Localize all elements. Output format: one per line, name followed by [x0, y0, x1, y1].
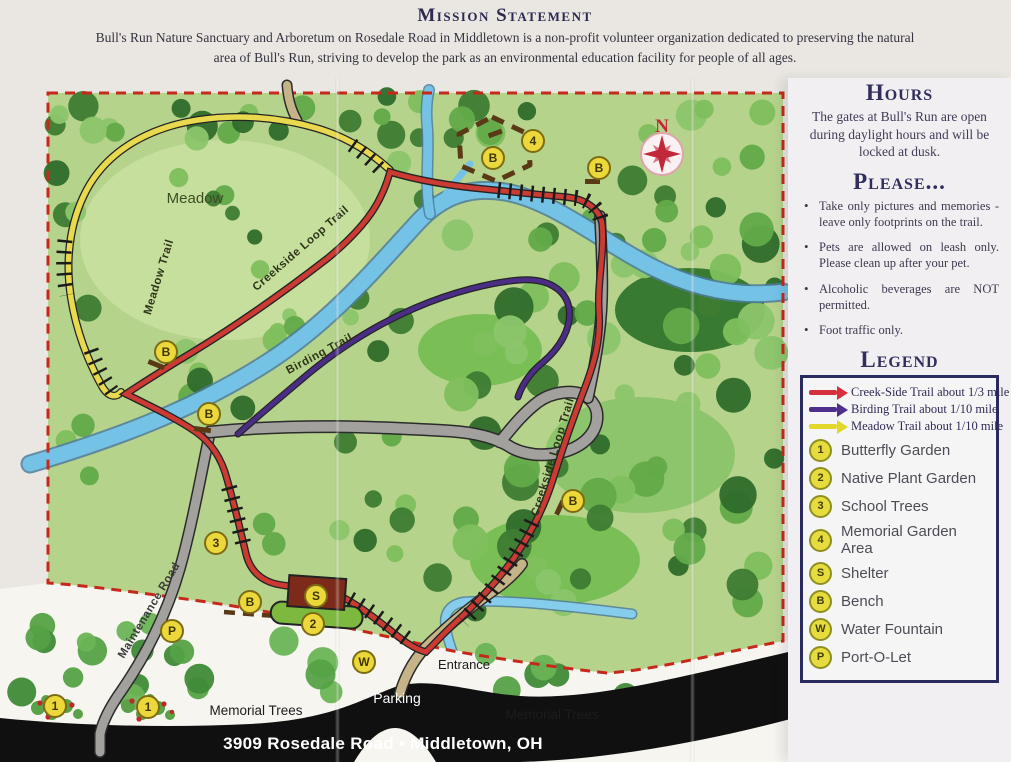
legend-title: Legend — [800, 347, 999, 373]
info-panel: Hours The gates at Bull's Run are open d… — [788, 78, 1011, 762]
compass-north-label: N — [655, 116, 669, 137]
legend-item: P Port-O-Let — [809, 646, 990, 669]
legend-item: B Bench — [809, 590, 990, 613]
marker-icon: S — [809, 562, 832, 585]
mission-title: Mission Statement — [85, 5, 925, 27]
svg-text:B: B — [489, 151, 498, 165]
please-list: Take only pictures and memories - leave … — [800, 198, 999, 339]
fold-crease — [690, 78, 695, 762]
legend-item: W Water Fountain — [809, 618, 990, 641]
legend-item-label: Water Fountain — [841, 621, 943, 638]
svg-text:B: B — [595, 161, 604, 175]
svg-text:B: B — [205, 407, 214, 421]
fold-crease — [335, 78, 340, 762]
legend-item-label: Native Plant Garden — [841, 470, 976, 487]
please-title: Please... — [800, 169, 999, 195]
please-item: Alcoholic beverages are NOT permitted. — [804, 281, 999, 314]
please-item: Pets are allowed on leash only. Please c… — [804, 239, 999, 272]
memorial-trees-label: Memorial Trees — [209, 703, 302, 718]
svg-text:4: 4 — [530, 134, 537, 148]
svg-text:P: P — [168, 624, 176, 638]
legend-item: 1 Butterfly Garden — [809, 439, 990, 462]
mission-statement: Mission Statement Bull's Run Nature Sanc… — [85, 5, 925, 69]
legend-item: 2 Native Plant Garden — [809, 467, 990, 490]
hours-title: Hours — [800, 80, 999, 106]
mission-body: Bull's Run Nature Sanctuary and Arboretu… — [85, 28, 925, 69]
please-item: Foot traffic only. — [804, 322, 999, 338]
svg-text:1: 1 — [145, 700, 152, 714]
svg-text:B: B — [246, 595, 255, 609]
meadow-label: Meadow — [167, 190, 224, 207]
legend-item: S Shelter — [809, 562, 990, 585]
legend-trail-label: Birding Trail about 1/10 mile — [851, 402, 998, 417]
legend-item-label: School Trees — [841, 498, 929, 515]
svg-text:B: B — [569, 494, 578, 508]
svg-text:S: S — [312, 589, 320, 603]
marker-icon: 1 — [809, 439, 832, 462]
svg-text:3: 3 — [213, 536, 220, 550]
birding-trail-arrow-icon — [809, 407, 837, 412]
legend-item-label: Bench — [841, 593, 884, 610]
svg-text:W: W — [358, 655, 370, 669]
brochure-page: Mission Statement Bull's Run Nature Sanc… — [0, 0, 1011, 762]
marker-icon: P — [809, 646, 832, 669]
legend-trail-label: Creek-Side Trail about 1/3 mile — [851, 385, 1009, 400]
svg-text:1: 1 — [52, 699, 59, 713]
please-item: Take only pictures and memories - leave … — [804, 198, 999, 231]
hours-text: The gates at Bull's Run are open during … — [800, 108, 999, 161]
legend-item: 4 Memorial Garden Area — [809, 523, 990, 557]
legend-item: 3 School Trees — [809, 495, 990, 518]
street-address: 3909 Rosedale Road • Middletown, OH — [223, 734, 543, 753]
marker-icon: W — [809, 618, 832, 641]
memorial-trees-label-2: Memorial Trees — [505, 707, 598, 722]
marker-icon: 2 — [809, 467, 832, 490]
legend-item-label: Memorial Garden Area — [841, 523, 990, 557]
legend-trail-label: Meadow Trail about 1/10 mile — [851, 419, 1003, 434]
legend-trail-row: Meadow Trail about 1/10 mile — [809, 419, 990, 434]
legend-item-label: Butterfly Garden — [841, 442, 950, 459]
legend-item-label: Port-O-Let — [841, 649, 911, 666]
parking-label: Parking — [373, 690, 420, 706]
marker-icon: 3 — [809, 495, 832, 518]
meadow-trail-arrow-icon — [809, 424, 837, 429]
legend-box: Creek-Side Trail about 1/3 mile Birding … — [800, 375, 999, 683]
legend-item-label: Shelter — [841, 565, 889, 582]
legend-trail-row: Creek-Side Trail about 1/3 mile — [809, 385, 990, 400]
marker-icon: B — [809, 590, 832, 613]
creekside-trail-arrow-icon — [809, 390, 837, 395]
svg-text:B: B — [162, 345, 171, 359]
marker-icon: 4 — [809, 529, 832, 552]
svg-text:2: 2 — [310, 617, 317, 631]
entrance-label: Entrance — [438, 657, 490, 672]
legend-trail-row: Birding Trail about 1/10 mile — [809, 402, 990, 417]
